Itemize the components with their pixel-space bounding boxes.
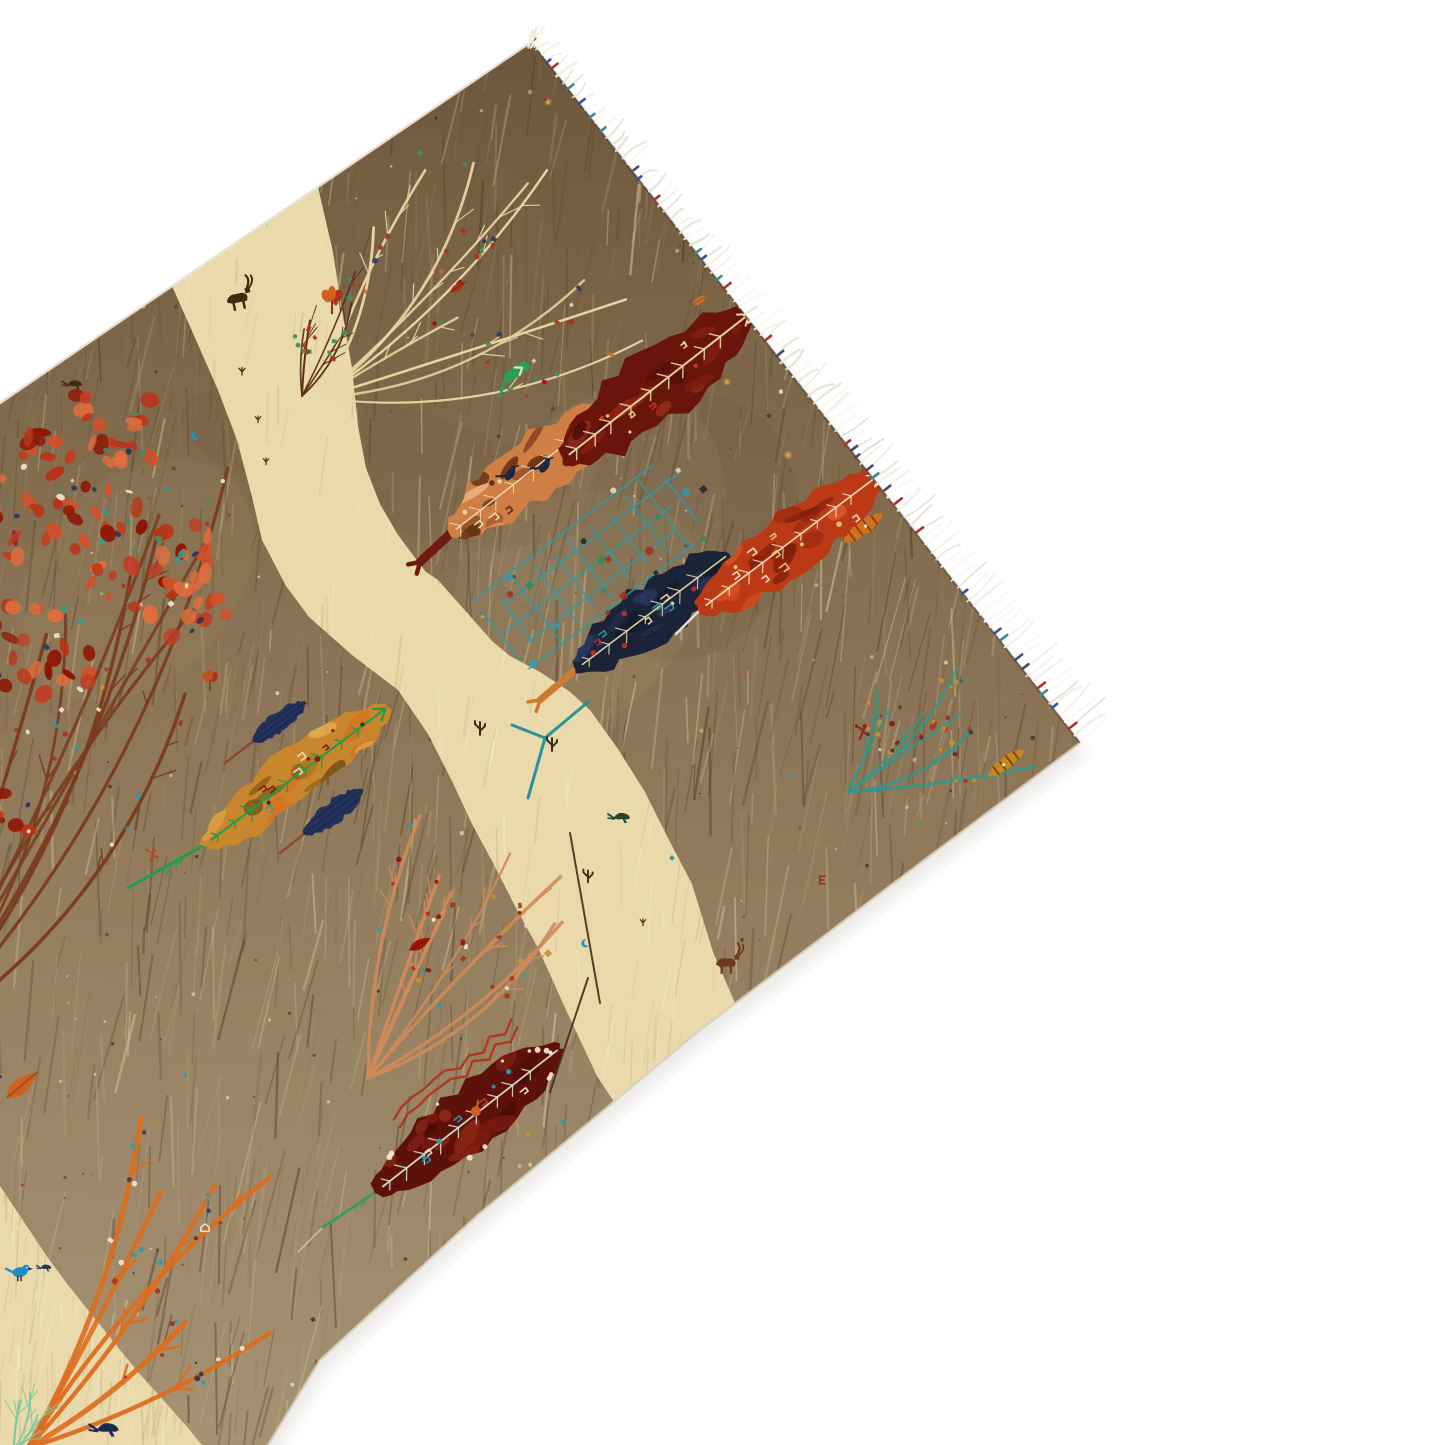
motif-sparkle bbox=[724, 379, 731, 386]
motif-dot bbox=[206, 500, 210, 504]
motif-sparkle bbox=[784, 451, 792, 459]
rug-photo-svg bbox=[0, 0, 1445, 1445]
photo-canvas bbox=[0, 0, 1445, 1445]
motif-dot bbox=[183, 1073, 187, 1077]
motif-sparkle bbox=[349, 92, 355, 98]
motif-sq bbox=[698, 1120, 703, 1125]
motif-sparkle bbox=[697, 123, 703, 129]
motif-dot bbox=[543, 98, 546, 101]
motif-dot bbox=[879, 739, 882, 742]
motif-dot bbox=[949, 685, 952, 688]
rug-product-photo bbox=[0, 0, 1445, 1445]
rug-field bbox=[0, 0, 1445, 1445]
